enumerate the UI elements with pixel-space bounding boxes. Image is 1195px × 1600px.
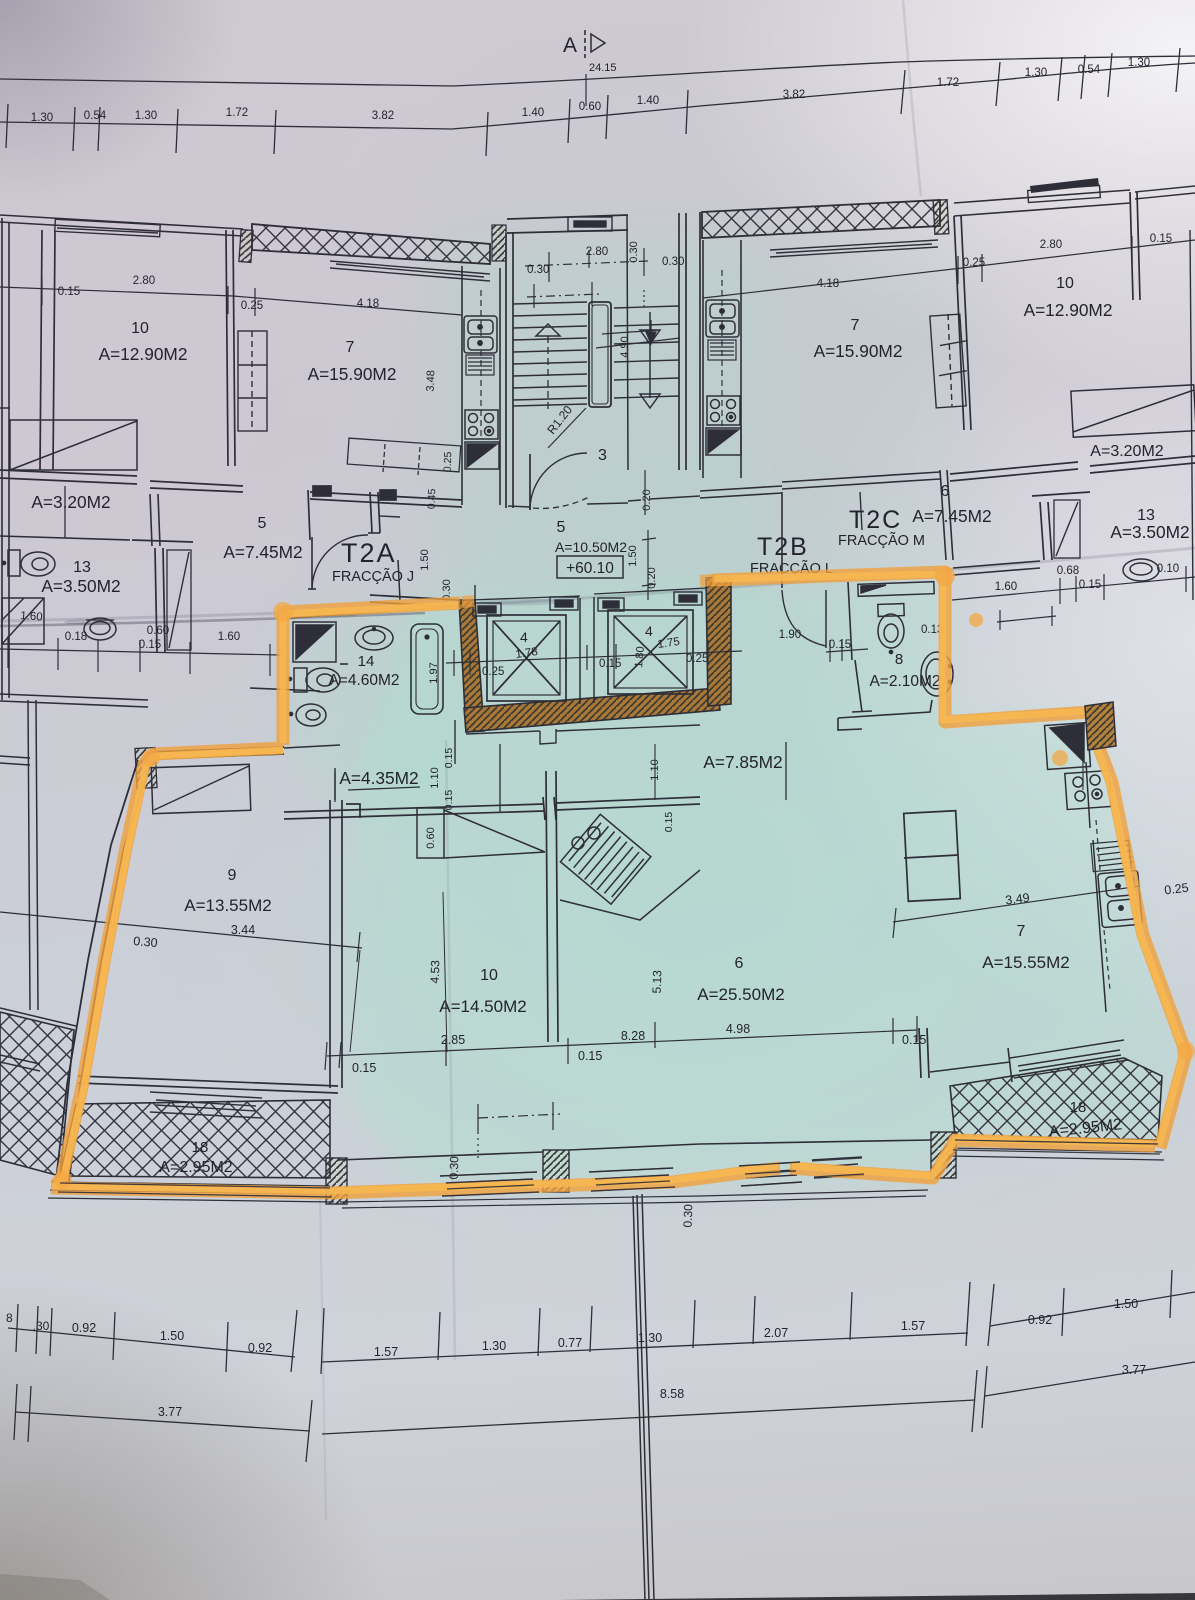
svg-text:1.40: 1.40 bbox=[522, 107, 544, 119]
svg-text:3.48: 3.48 bbox=[425, 370, 438, 392]
svg-text:10: 10 bbox=[131, 320, 149, 337]
svg-text:0.15: 0.15 bbox=[352, 1061, 376, 1075]
svg-text:2.80: 2.80 bbox=[133, 275, 155, 287]
svg-text:0.15: 0.15 bbox=[829, 639, 851, 651]
svg-text:A=25.50M2: A=25.50M2 bbox=[697, 985, 784, 1004]
svg-text:1.30: 1.30 bbox=[1128, 57, 1150, 69]
svg-text:8: 8 bbox=[895, 651, 903, 668]
svg-text:0.25: 0.25 bbox=[241, 300, 263, 312]
svg-text:0.15: 0.15 bbox=[443, 748, 455, 769]
svg-text:A=15.55M2: A=15.55M2 bbox=[982, 953, 1069, 972]
svg-text:1.10: 1.10 bbox=[429, 767, 441, 788]
svg-text:A=4.35M2: A=4.35M2 bbox=[339, 768, 418, 788]
svg-text:0.25: 0.25 bbox=[482, 666, 504, 678]
svg-text:3.82: 3.82 bbox=[783, 89, 805, 101]
svg-text:0.15: 0.15 bbox=[663, 812, 675, 833]
svg-text:0.15: 0.15 bbox=[139, 639, 161, 651]
svg-text:1.30: 1.30 bbox=[135, 110, 157, 122]
svg-text:A: A bbox=[563, 34, 577, 57]
svg-text:18: 18 bbox=[192, 1139, 209, 1156]
svg-text:0.10: 0.10 bbox=[1157, 563, 1179, 575]
svg-text:FRACÇÃO M: FRACÇÃO M bbox=[838, 532, 925, 549]
svg-text:0.92: 0.92 bbox=[248, 1341, 272, 1355]
svg-text:7: 7 bbox=[1017, 923, 1026, 940]
svg-text:0.54: 0.54 bbox=[1078, 64, 1101, 76]
svg-text:3.49: 3.49 bbox=[1005, 891, 1031, 908]
svg-text:10: 10 bbox=[1056, 275, 1074, 292]
svg-text:T2A: T2A bbox=[341, 538, 397, 568]
svg-text:A=2.95M2: A=2.95M2 bbox=[159, 1159, 232, 1176]
svg-text:0.60: 0.60 bbox=[579, 101, 601, 113]
svg-text:A=13.55M2: A=13.55M2 bbox=[184, 896, 271, 915]
svg-text:18: 18 bbox=[1070, 1099, 1087, 1116]
svg-text:9: 9 bbox=[228, 867, 237, 884]
svg-text:1.97: 1.97 bbox=[428, 662, 440, 683]
svg-text:.30: .30 bbox=[33, 1319, 50, 1333]
svg-text:3: 3 bbox=[598, 447, 607, 464]
svg-text:1.72: 1.72 bbox=[226, 107, 248, 119]
svg-text:1.60: 1.60 bbox=[218, 631, 240, 643]
svg-text:7: 7 bbox=[346, 339, 355, 356]
svg-text:1.30: 1.30 bbox=[31, 112, 53, 124]
svg-text:0.60: 0.60 bbox=[147, 625, 169, 637]
svg-text:10: 10 bbox=[480, 967, 498, 984]
svg-text:T2B: T2B bbox=[757, 533, 809, 561]
svg-text:A=3.50M2: A=3.50M2 bbox=[41, 576, 120, 596]
svg-text:1.50: 1.50 bbox=[1114, 1297, 1138, 1311]
svg-text:0.15: 0.15 bbox=[58, 286, 80, 298]
svg-text:A=3.20M2: A=3.20M2 bbox=[31, 492, 110, 512]
svg-text:8: 8 bbox=[6, 1311, 13, 1325]
svg-text:A=7.45M2: A=7.45M2 bbox=[223, 542, 302, 562]
svg-text:0.45: 0.45 bbox=[426, 488, 439, 509]
svg-text:A=14.50M2: A=14.50M2 bbox=[439, 997, 526, 1016]
svg-text:A=7.45M2: A=7.45M2 bbox=[912, 506, 991, 526]
svg-text:3.77: 3.77 bbox=[1122, 1363, 1146, 1377]
svg-text:0.25: 0.25 bbox=[963, 257, 985, 269]
svg-text:2.80: 2.80 bbox=[1040, 239, 1062, 251]
svg-text:0.20: 0.20 bbox=[641, 489, 653, 510]
svg-text:1.50: 1.50 bbox=[160, 1329, 184, 1343]
svg-text:1.30: 1.30 bbox=[1025, 67, 1047, 79]
svg-text:5.13: 5.13 bbox=[650, 970, 665, 994]
svg-text:A=3.20M2: A=3.20M2 bbox=[1090, 443, 1163, 460]
svg-text:1.57: 1.57 bbox=[901, 1319, 925, 1333]
svg-text:7: 7 bbox=[851, 317, 860, 334]
svg-text:1.50: 1.50 bbox=[627, 545, 639, 566]
svg-text:FRACÇÃO J: FRACÇÃO J bbox=[332, 568, 414, 585]
svg-text:+60.10: +60.10 bbox=[566, 560, 614, 577]
svg-text:1.80: 1.80 bbox=[633, 646, 647, 668]
svg-text:A=2.10M2: A=2.10M2 bbox=[869, 673, 940, 690]
svg-text:1.30: 1.30 bbox=[638, 1331, 662, 1345]
svg-text:T2C: T2C bbox=[849, 506, 902, 534]
svg-text:A=15.90M2: A=15.90M2 bbox=[814, 341, 903, 361]
svg-text:0.92: 0.92 bbox=[72, 1321, 96, 1335]
svg-text:0.54: 0.54 bbox=[84, 110, 107, 122]
svg-text:A=15.90M2: A=15.90M2 bbox=[308, 364, 397, 384]
svg-text:0.15: 0.15 bbox=[1150, 233, 1172, 245]
svg-text:13: 13 bbox=[73, 559, 91, 576]
svg-text:4.18: 4.18 bbox=[357, 298, 379, 310]
svg-text:0.18: 0.18 bbox=[65, 631, 87, 643]
svg-text:0.68: 0.68 bbox=[1057, 565, 1079, 577]
svg-text:4: 4 bbox=[520, 629, 528, 645]
svg-text:4.90: 4.90 bbox=[619, 336, 631, 357]
svg-text:0.30: 0.30 bbox=[628, 241, 640, 262]
svg-text:3.82: 3.82 bbox=[372, 110, 394, 122]
svg-text:3.77: 3.77 bbox=[158, 1405, 182, 1419]
svg-text:1.60: 1.60 bbox=[995, 581, 1017, 593]
svg-text:0.25: 0.25 bbox=[1164, 881, 1190, 898]
svg-text:1.50: 1.50 bbox=[419, 549, 431, 570]
svg-text:0.60: 0.60 bbox=[425, 827, 437, 848]
svg-text:A=7.85M2: A=7.85M2 bbox=[703, 752, 782, 772]
svg-text:A=4.60M2: A=4.60M2 bbox=[328, 672, 399, 689]
svg-text:2.85: 2.85 bbox=[441, 1033, 465, 1047]
svg-text:1.60: 1.60 bbox=[20, 610, 43, 624]
svg-text:1.90: 1.90 bbox=[779, 629, 801, 641]
svg-text:1.40: 1.40 bbox=[637, 95, 659, 107]
svg-text:0.77: 0.77 bbox=[558, 1336, 582, 1350]
svg-text:8.28: 8.28 bbox=[621, 1029, 645, 1043]
svg-text:A=12.90M2: A=12.90M2 bbox=[1024, 300, 1113, 320]
svg-text:6: 6 bbox=[735, 955, 744, 972]
svg-text:24.15: 24.15 bbox=[589, 62, 617, 74]
svg-text:1.72: 1.72 bbox=[937, 77, 959, 89]
svg-text:0.92: 0.92 bbox=[1028, 1313, 1052, 1327]
svg-text:0.15: 0.15 bbox=[902, 1033, 926, 1047]
svg-text:A=10.50M2: A=10.50M2 bbox=[555, 539, 627, 555]
svg-text:0.30: 0.30 bbox=[527, 264, 549, 276]
svg-text:2.80: 2.80 bbox=[586, 246, 608, 258]
svg-text:0.25: 0.25 bbox=[686, 653, 708, 665]
svg-text:4.18: 4.18 bbox=[817, 278, 839, 290]
svg-text:0.25: 0.25 bbox=[442, 451, 455, 472]
svg-text:8.58: 8.58 bbox=[660, 1387, 684, 1401]
svg-text:0.15: 0.15 bbox=[578, 1049, 602, 1063]
svg-text:4: 4 bbox=[645, 623, 653, 639]
svg-text:A=12.90M2: A=12.90M2 bbox=[99, 344, 188, 364]
svg-text:14: 14 bbox=[358, 653, 375, 670]
svg-text:1.57: 1.57 bbox=[374, 1345, 398, 1359]
svg-text:0.30: 0.30 bbox=[133, 934, 159, 950]
svg-text:5: 5 bbox=[258, 515, 267, 532]
svg-text:0.15: 0.15 bbox=[599, 658, 621, 670]
svg-text:1.30: 1.30 bbox=[482, 1339, 506, 1353]
svg-text:2.07: 2.07 bbox=[764, 1326, 788, 1340]
svg-text:5: 5 bbox=[557, 519, 566, 536]
svg-text:4.53: 4.53 bbox=[428, 960, 443, 984]
svg-text:0.15: 0.15 bbox=[1079, 579, 1101, 591]
svg-text:0.30: 0.30 bbox=[681, 1204, 696, 1228]
svg-text:A=3.50M2: A=3.50M2 bbox=[1110, 522, 1189, 542]
svg-text:0.30: 0.30 bbox=[662, 256, 684, 268]
svg-text:4.98: 4.98 bbox=[726, 1022, 750, 1036]
